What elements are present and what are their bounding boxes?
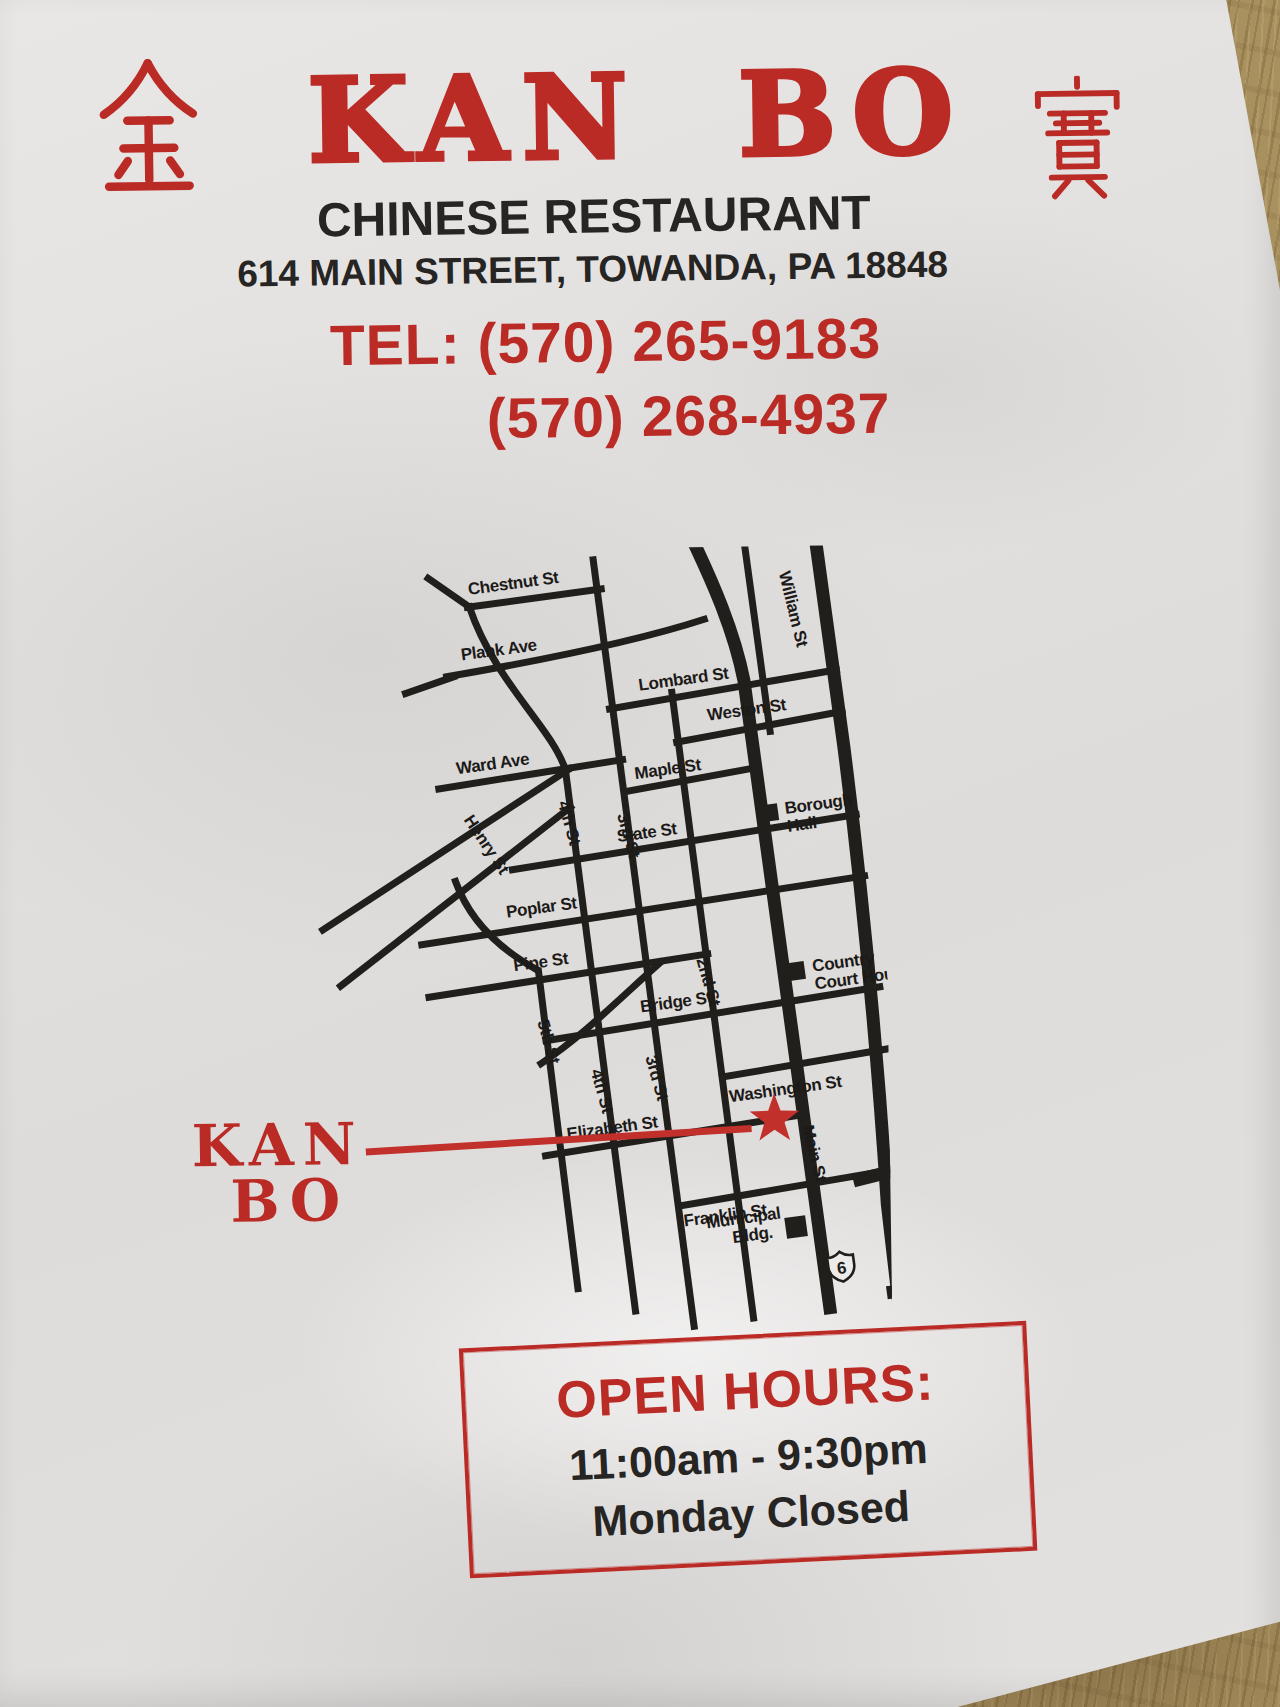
street-line-washington [722,1046,893,1077]
street-label-poplar: Poplar St [505,893,579,922]
map-marker-label-bo: BO [230,1166,350,1236]
phone-number-secondary: (570) 268-4937 [233,376,1144,455]
phone-number-primary: TEL: (570) 265-9183 [150,302,1061,381]
menu-content: KAN BO CHINESE RESTAURANT 614 MAIN STREE… [0,0,1280,1707]
street-label-fourth-lower: 4th St [587,1067,618,1116]
map-streets [276,545,893,1369]
municipal-label-2: Bldg. [731,1223,774,1247]
restaurant-subtitle: CHINESE RESTAURANT [158,183,1029,250]
borough-hall-label-2: Hall [786,813,818,836]
court-house-marker [786,961,806,981]
street-label-fifth: 5th St [533,1018,564,1067]
borough-hall-marker [760,803,779,822]
restaurant-address: 614 MAIN STREET, TOWANDA, PA 18848 [157,243,1028,297]
open-hours-title: OPEN HOURS: [464,1347,1026,1434]
location-map: Chestnut St Plank Ave Lombard St Ward Av… [172,545,893,1375]
municipal-bldg-marker [784,1215,808,1239]
chinese-character-bao-icon [1025,75,1131,200]
street-label-william: William St [775,569,812,649]
street-line-pine [428,954,708,997]
map-street-grid: Chestnut St Plank Ave Lombard St Ward Av… [276,545,893,1369]
chinese-character-jin-icon [95,56,203,197]
restaurant-name: KAN BO [247,53,1029,180]
open-hours-box: OPEN HOURS: 11:00am - 9:30pm Monday Clos… [459,1321,1038,1578]
street-label-fourth-upper: 4th St [554,799,585,848]
street-label-third-lower: 3rd St [641,1053,672,1103]
street-label-pine: Pine St [512,949,570,975]
photographed-menu-page: { "header": { "left_character": "金", "ri… [0,0,1280,1707]
street-label-washington: Washington St [728,1072,843,1106]
